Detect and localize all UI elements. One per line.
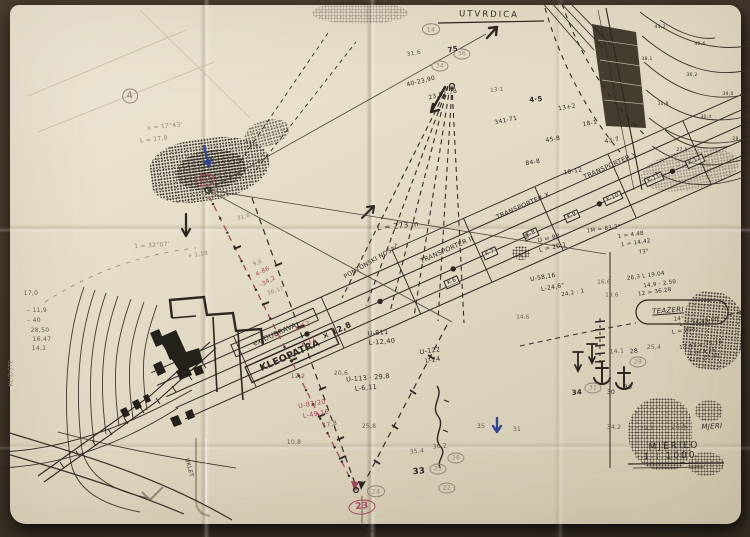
photo-of-survey-map: UTVRDICAMJERILO1 : 1000MJERI34,229,126,9… [0,0,750,537]
map-sheet [10,5,741,524]
